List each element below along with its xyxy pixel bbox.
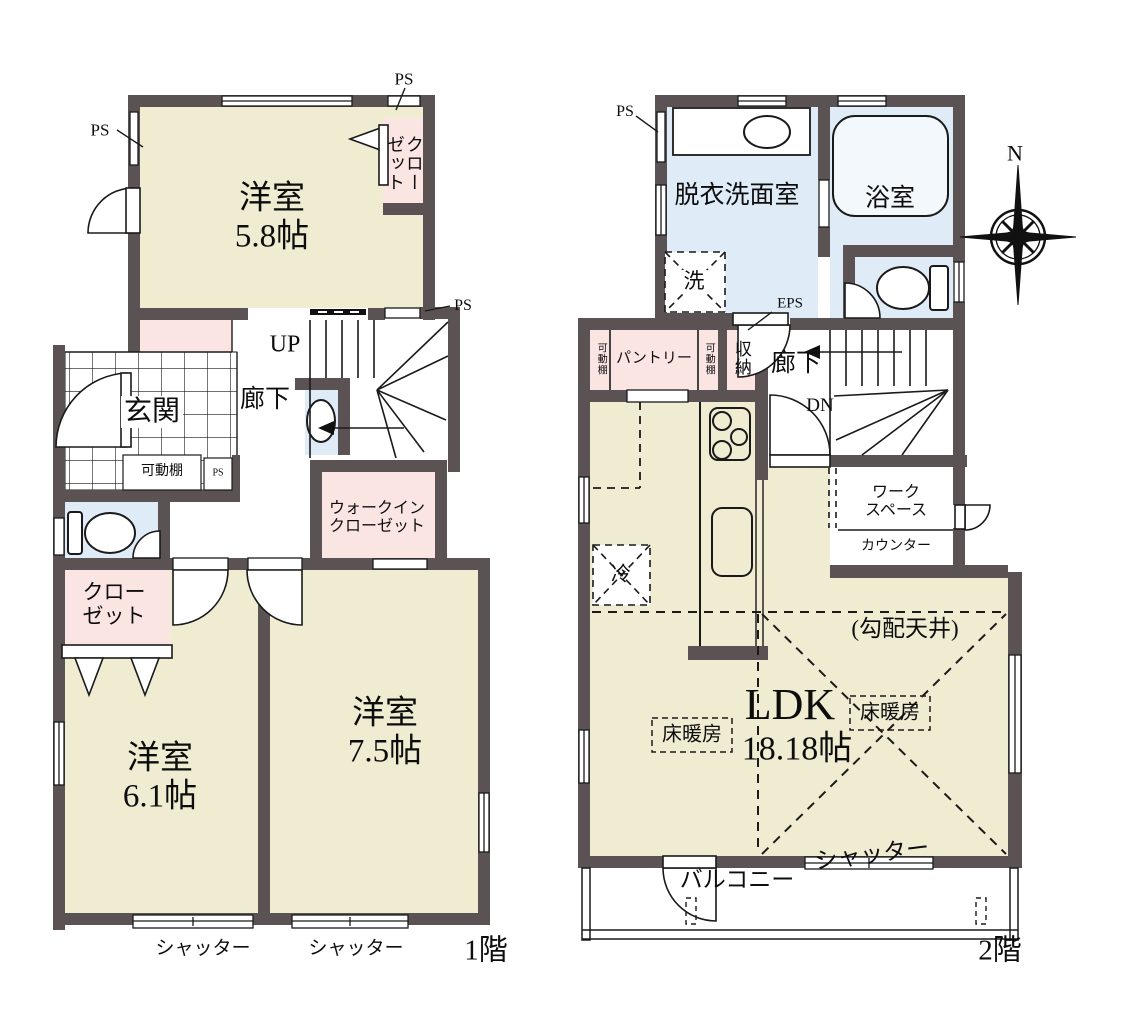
- door-leaf-room61: [173, 558, 228, 570]
- toilet2-bowl-icon: [877, 267, 929, 309]
- floor2-label: 2階: [978, 934, 1022, 967]
- ps-pipe-label: PS: [212, 467, 223, 478]
- ps-label-topleft-1f: PS: [91, 120, 110, 139]
- room-5-8-label: 洋室 5.8帖: [235, 180, 309, 255]
- balcony-label: バルコニー: [680, 867, 795, 893]
- counter-label: カウンター: [861, 539, 931, 555]
- window-room58-top: [222, 96, 352, 106]
- walk-in-closet-label: ウォークイン クローゼット: [329, 500, 425, 536]
- shutter-window-room75: [292, 915, 408, 928]
- closet-5-8-label: クローゼット: [385, 127, 423, 199]
- ldk-title-label: LDK: [745, 680, 835, 730]
- washroom-door-leaf: [733, 313, 788, 325]
- toilet1-bowl-icon: [85, 513, 135, 553]
- hallway-1f-label: 廊下: [240, 386, 290, 415]
- entrance-door-leaf: [126, 188, 140, 233]
- ps-niche-topright: [388, 96, 420, 106]
- door-leaf-room75: [248, 558, 302, 570]
- window-washroom-left: [656, 185, 666, 235]
- laundry-label: 洗: [681, 270, 708, 294]
- workspace-door-leaf: [955, 505, 965, 529]
- window-room61-left: [54, 722, 64, 785]
- sliding-door-room58: [310, 309, 366, 315]
- ps-niche-midright: [385, 308, 420, 318]
- vanity-sink-icon: [744, 116, 790, 148]
- hallway-2f-label: 廊下: [771, 350, 821, 379]
- floorplan-canvas: PS 洋室 5.8帖 クローゼット PS PS UP 廊下 玄関 可動棚 PS …: [0, 0, 1122, 1028]
- refrigerator-label: 冷: [611, 564, 631, 587]
- floor1-label: 1階: [464, 934, 508, 967]
- closet-6-1-label: クロー ゼット: [83, 581, 146, 629]
- floor-heating-left-label: 床暖房: [662, 724, 722, 747]
- window-bath-top: [838, 96, 886, 106]
- ps-label-midright-1f: PS: [454, 297, 472, 315]
- counter-strip-floor: [755, 480, 768, 856]
- room-6-1-label: 洋室 6.1帖: [123, 740, 197, 815]
- compass-icon: [960, 165, 1076, 305]
- bath-sliding-door: [819, 180, 829, 227]
- window-ldk-left: [579, 730, 589, 783]
- sloped-ceiling-label: (勾配天井): [851, 616, 958, 642]
- shoe-cabinet-floor: [140, 320, 232, 352]
- shutter-window-room61: [133, 915, 253, 928]
- movable-shelf-2f-right-label: 可動棚: [703, 343, 714, 376]
- window-washroom-top: [738, 96, 786, 106]
- washbasin-icon: [307, 400, 335, 442]
- workspace-door: [965, 505, 990, 530]
- toilet2-tank-icon: [930, 266, 948, 310]
- eps-label: EPS: [777, 295, 803, 312]
- window-toilet1: [54, 518, 64, 555]
- stairs-up-label: UP: [270, 331, 301, 358]
- movable-shelf-1f-label: 可動棚: [141, 464, 183, 480]
- ps-label-2f: PS: [616, 103, 634, 121]
- storage-label: 収納: [732, 340, 750, 376]
- ps-niche-floor2: [657, 112, 665, 162]
- ldk-size-label: 18.18帖: [742, 731, 853, 770]
- movable-shelf-2f-left-label: 可動棚: [595, 343, 606, 376]
- ldk-door-leaf: [770, 455, 830, 467]
- shutter-label-left: シャッター: [155, 938, 250, 960]
- room-7-5-label: 洋室 7.5帖: [348, 695, 422, 770]
- window-toilet2: [954, 262, 964, 302]
- window-ldk-right: [1009, 655, 1021, 773]
- floorplan-drawing: [0, 0, 1122, 1028]
- entrance-label: 玄関: [121, 396, 183, 428]
- kitchen-ldk-floor: [590, 402, 755, 856]
- compass-north-label: N: [1007, 140, 1023, 165]
- stairs-down-label: DN: [806, 395, 833, 417]
- window-room75-right: [479, 793, 489, 852]
- shutter-label-right: シャッター: [308, 938, 403, 960]
- floor-heating-right-label: 床暖房: [860, 702, 920, 725]
- toilet1-tank-icon: [68, 512, 82, 554]
- wic-opening: [373, 559, 427, 569]
- ps-label-topright-1f: PS: [395, 69, 414, 88]
- window-kitchen-left: [579, 477, 589, 523]
- workspace-label: ワーク スペース: [865, 484, 927, 520]
- bathroom-label: 浴室: [865, 185, 915, 214]
- closet61-hanger-bar: [62, 645, 172, 658]
- pantry-label: パントリー: [616, 350, 692, 367]
- balcony-structure: [582, 868, 1018, 940]
- pantry-opening: [627, 390, 688, 402]
- balcony-drain-mark: [976, 898, 986, 924]
- washroom-label: 脱衣洗面室: [674, 182, 799, 211]
